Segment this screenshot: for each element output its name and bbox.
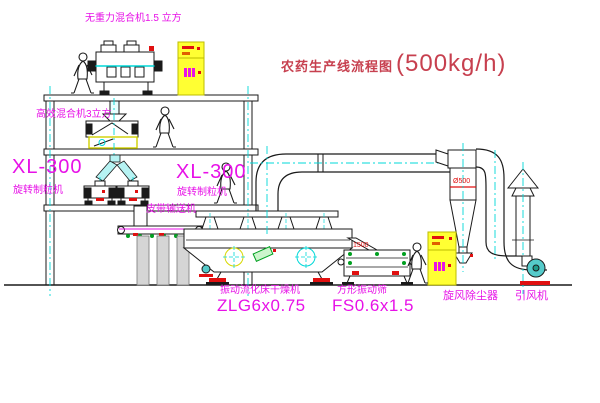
- fan-suction-pipe: [476, 149, 547, 270]
- label-cyclone: 旋风除尘器: [443, 291, 498, 302]
- title-capacity: (500kg/h): [396, 50, 506, 78]
- rotary-granulator-right: [117, 177, 149, 205]
- label-sieve-model: FS0.6x1.5: [332, 297, 414, 314]
- square-vibrating-sieve: [338, 250, 416, 285]
- control-cabinet-ground: [428, 232, 456, 285]
- annotation-cyclone-diameter: Ø500: [453, 178, 470, 185]
- person-second-floor: [153, 107, 176, 147]
- annotation-dimension-1500: 1500: [353, 242, 369, 249]
- floor-slab-top: [44, 95, 258, 101]
- label-fan: 引风机: [515, 291, 548, 302]
- label-granulator-right-name: 旋转制粒机: [177, 188, 227, 198]
- label-dryer-name: 振动流化床干燥机: [220, 286, 300, 296]
- label-belt-conveyor: 皮带输送机: [146, 205, 196, 215]
- gravity-free-mixer: [88, 41, 162, 94]
- label-dryer-model: ZLG6x0.75: [217, 297, 306, 314]
- label-sieve-name: 方形振动筛: [337, 286, 387, 296]
- person-top-floor: [71, 53, 94, 93]
- drawing-title: 农药生产线流程图 (500kg/h): [281, 50, 506, 78]
- diagram-canvas: 农药生产线流程图 (500kg/h) 无重力混合机1.5 立方 高效混合机3立方…: [0, 0, 600, 403]
- rotary-granulator-left: [84, 177, 116, 205]
- title-text: 农药生产线流程图: [281, 56, 393, 75]
- control-cabinet-top: [178, 42, 204, 95]
- floor-slab-mid: [44, 149, 258, 155]
- label-granulator-left-name: 旋转制粒机: [13, 186, 63, 196]
- label-granulator-right-model: XL-300: [176, 162, 247, 182]
- label-gravity-mixer: 无重力混合机1.5 立方: [85, 14, 182, 24]
- y-chute: [96, 155, 137, 181]
- label-granulator-left-model: XL-300: [12, 157, 83, 177]
- label-high-eff-mixer: 高效混合机3立方: [36, 110, 112, 120]
